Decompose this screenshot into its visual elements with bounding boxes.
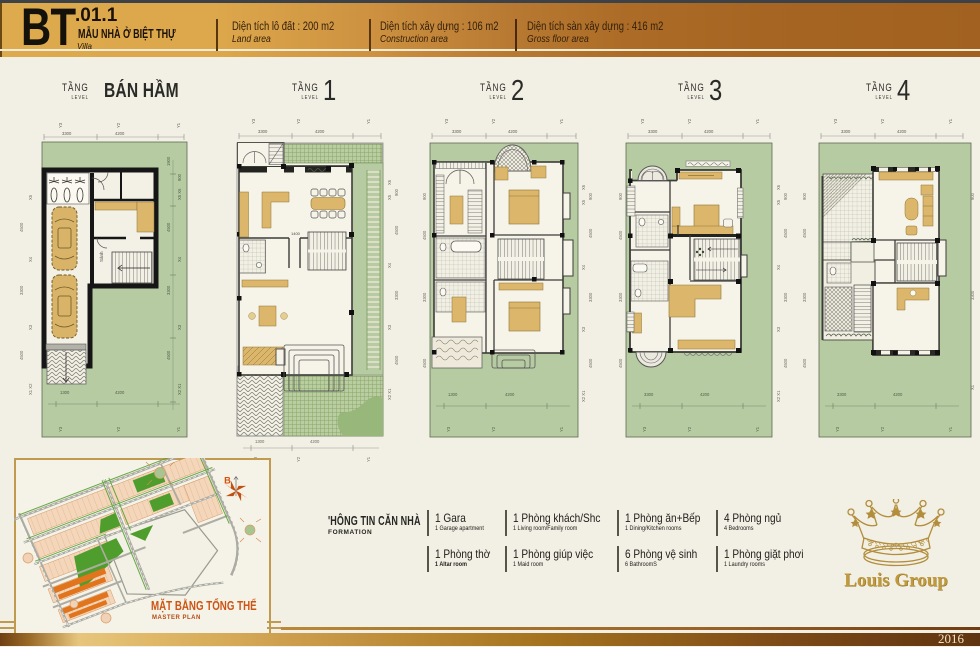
svg-text:900: 900 — [618, 192, 623, 200]
svg-text:4500: 4500 — [783, 358, 788, 368]
svg-text:4200: 4200 — [310, 439, 320, 444]
svg-text:X3: X3 — [776, 326, 781, 332]
svg-text:3300: 3300 — [970, 290, 975, 300]
svg-text:4500: 4500 — [422, 358, 427, 368]
svg-text:X5 X6: X5 X6 — [177, 188, 182, 200]
svg-text:X2 X1: X2 X1 — [387, 388, 392, 400]
svg-text:4500: 4500 — [394, 225, 399, 235]
svg-text:4200: 4200 — [704, 129, 714, 134]
svg-text:Y2: Y2 — [880, 118, 885, 124]
svg-text:4500: 4500 — [422, 230, 427, 240]
svg-text:1300: 1300 — [60, 390, 70, 395]
svg-text:4200: 4200 — [315, 129, 325, 134]
svg-text:X2 X1: X2 X1 — [581, 390, 586, 402]
svg-text:Y3: Y3 — [58, 122, 63, 128]
svg-text:4500: 4500 — [166, 222, 171, 232]
svg-text:3300: 3300 — [62, 131, 72, 136]
svg-text:X4: X4 — [776, 264, 781, 270]
svg-text:Y3: Y3 — [640, 118, 645, 124]
svg-text:3300: 3300 — [422, 292, 427, 302]
svg-text:900: 900 — [588, 192, 593, 200]
svg-text:Y1: Y1 — [176, 122, 181, 128]
svg-text:3300: 3300 — [258, 129, 268, 134]
svg-text:900: 900 — [783, 192, 788, 200]
svg-text:3300: 3300 — [644, 392, 654, 397]
svg-text:Y1: Y1 — [948, 426, 953, 432]
svg-text:900: 900 — [422, 192, 427, 200]
svg-text:3300: 3300 — [166, 285, 171, 295]
svg-text:Y2: Y2 — [116, 122, 121, 128]
svg-text:X6: X6 — [581, 184, 586, 190]
svg-text:Y3: Y3 — [642, 426, 647, 432]
svg-text:4200: 4200 — [115, 131, 125, 136]
svg-text:Y3: Y3 — [835, 426, 840, 432]
svg-text:Y3: Y3 — [58, 426, 63, 432]
svg-text:4500: 4500 — [166, 350, 171, 360]
svg-text:Y3: Y3 — [833, 118, 838, 124]
svg-text:4500: 4500 — [618, 230, 623, 240]
svg-text:900: 900 — [394, 188, 399, 196]
svg-text:X1: X1 — [970, 384, 975, 390]
svg-text:4500: 4500 — [394, 355, 399, 365]
svg-text:3300: 3300 — [802, 292, 807, 302]
svg-text:3300: 3300 — [783, 292, 788, 302]
svg-text:Y2: Y2 — [491, 118, 496, 124]
svg-text:3300: 3300 — [837, 392, 847, 397]
svg-text:X2 X1: X2 X1 — [177, 383, 182, 395]
svg-text:Y3: Y3 — [446, 426, 451, 432]
svg-text:3300: 3300 — [841, 129, 851, 134]
svg-text:Y1: Y1 — [366, 456, 371, 462]
svg-text:X4: X4 — [28, 256, 33, 262]
svg-text:4200: 4200 — [115, 390, 125, 395]
svg-text:Y3: Y3 — [251, 118, 256, 124]
svg-text:900: 900 — [802, 192, 807, 200]
svg-text:Y2: Y2 — [687, 426, 692, 432]
svg-text:Y2: Y2 — [296, 118, 301, 124]
svg-text:1300: 1300 — [255, 439, 265, 444]
svg-text:Y3: Y3 — [444, 118, 449, 124]
svg-text:X4: X4 — [387, 262, 392, 268]
svg-text:Y1: Y1 — [559, 118, 564, 124]
svg-text:Y1: Y1 — [366, 118, 371, 124]
svg-text:4500: 4500 — [618, 358, 623, 368]
svg-text:1300: 1300 — [448, 392, 458, 397]
svg-text:3300: 3300 — [452, 129, 462, 134]
svg-text:X4: X4 — [581, 264, 586, 270]
svg-text:Y1: Y1 — [948, 118, 953, 124]
svg-text:3300: 3300 — [618, 292, 623, 302]
svg-text:4500: 4500 — [588, 228, 593, 238]
svg-text:Sảnh: Sảnh — [99, 251, 104, 262]
svg-text:Y2: Y2 — [116, 426, 121, 432]
svg-text:4500: 4500 — [783, 228, 788, 238]
svg-text:X1 X2: X1 X2 — [28, 383, 33, 395]
svg-text:X3: X3 — [387, 324, 392, 330]
svg-text:X5: X5 — [776, 199, 781, 205]
svg-text:X6: X6 — [387, 179, 392, 185]
svg-text:Y1: Y1 — [176, 426, 181, 432]
svg-text:4500: 4500 — [588, 358, 593, 368]
svg-text:4500: 4500 — [19, 222, 24, 232]
svg-text:3300: 3300 — [648, 129, 658, 134]
svg-text:X5: X5 — [581, 199, 586, 205]
svg-text:X3: X3 — [581, 326, 586, 332]
svg-text:4200: 4200 — [897, 129, 907, 134]
svg-text:4500: 4500 — [802, 228, 807, 238]
svg-text:Y2: Y2 — [491, 426, 496, 432]
svg-text:3300: 3300 — [394, 290, 399, 300]
svg-text:Y1: Y1 — [755, 426, 760, 432]
svg-text:Y1: Y1 — [755, 118, 760, 124]
svg-text:900: 900 — [177, 173, 182, 181]
svg-text:X6: X6 — [776, 184, 781, 190]
svg-text:X2 X1: X2 X1 — [776, 390, 781, 402]
svg-text:Y2: Y2 — [880, 426, 885, 432]
svg-text:3300: 3300 — [588, 292, 593, 302]
svg-text:Y2: Y2 — [687, 118, 692, 124]
svg-text:X5: X5 — [28, 194, 33, 200]
svg-text:X5: X5 — [387, 194, 392, 200]
svg-text:1400: 1400 — [291, 231, 301, 236]
svg-text:Y1: Y1 — [559, 426, 564, 432]
svg-text:1900: 1900 — [166, 156, 171, 166]
svg-text:B: B — [224, 475, 231, 485]
svg-text:4200: 4200 — [893, 392, 903, 397]
svg-text:4200: 4200 — [505, 392, 515, 397]
svg-text:4200: 4200 — [700, 392, 710, 397]
svg-text:4500: 4500 — [19, 350, 24, 360]
svg-text:4500: 4500 — [802, 358, 807, 368]
svg-text:Y2: Y2 — [296, 456, 301, 462]
svg-text:900: 900 — [970, 192, 975, 200]
svg-text:4200: 4200 — [508, 129, 518, 134]
svg-text:X3: X3 — [28, 324, 33, 330]
svg-text:X4: X4 — [177, 256, 182, 262]
svg-text:X3: X3 — [177, 324, 182, 330]
svg-text:3300: 3300 — [19, 285, 24, 295]
